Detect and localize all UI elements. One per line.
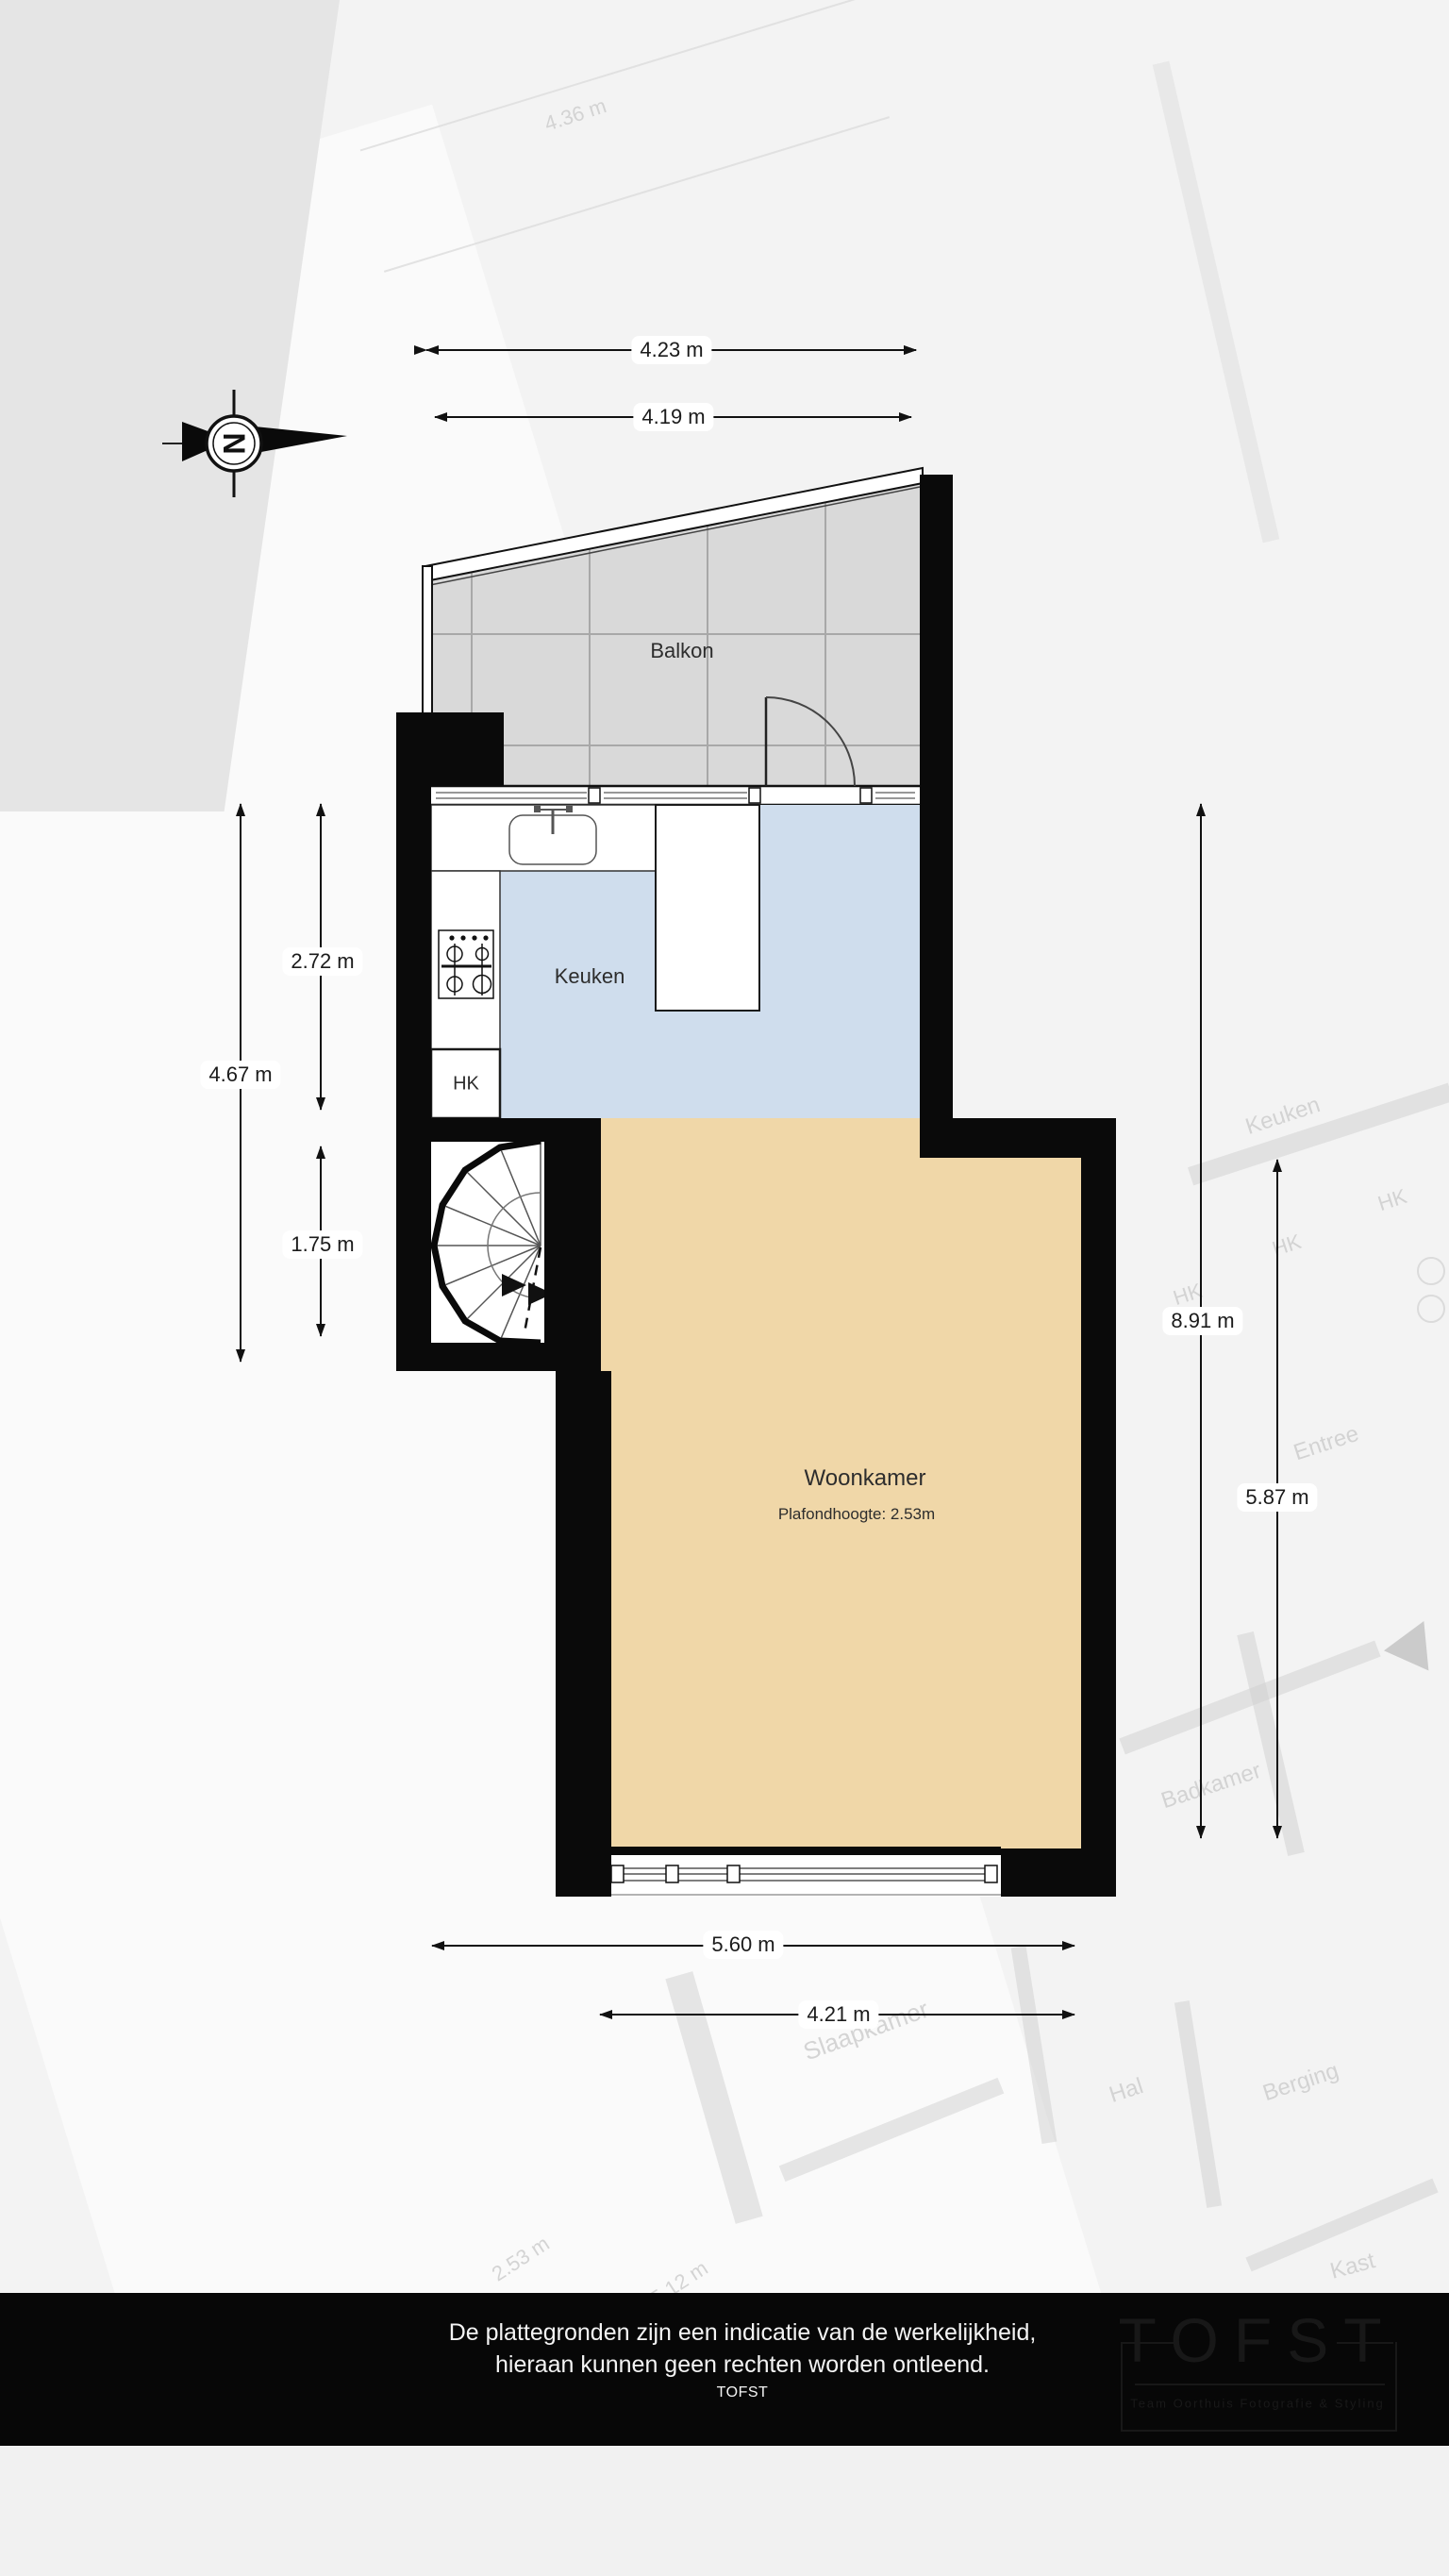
room-label-woonkamer: Woonkamer (805, 1465, 926, 1492)
dim-label-kitchen-height: 2.72 m (282, 947, 362, 976)
room-label-keuken: Keuken (555, 964, 625, 989)
stove-icon (439, 930, 493, 998)
kitchen (431, 805, 920, 1118)
dim-label-stairs-height: 1.75 m (282, 1230, 362, 1259)
dim-label-bottom-1: 5.60 m (703, 1931, 783, 1959)
compass-north-letter: N (217, 432, 251, 454)
tofst-logo-wordmark: TOFST (1118, 2304, 1396, 2376)
floor-plan-svg: N (0, 0, 1449, 2576)
footer-disclaimer: De plattegronden zijn een indicatie van … (299, 2317, 1186, 2405)
sink-icon (509, 806, 596, 864)
room-label-balkon: Balkon (650, 639, 713, 663)
floorplan-page: 4.36 m Keuken HK HK HK Entree Badkamer H… (0, 0, 1449, 2576)
tofst-logo-underline (1135, 2384, 1385, 2385)
kitchen-island (656, 805, 759, 1011)
dim-label-top-1: 4.23 m (631, 336, 711, 364)
dim-label-left-total: 4.67 m (200, 1061, 280, 1089)
balcony-glass-front (431, 786, 920, 805)
room-label-hk: HK (453, 1074, 479, 1096)
living-room-window (611, 1855, 1001, 1897)
dim-label-top-2: 4.19 m (633, 403, 713, 431)
dim-label-living-height: 5.87 m (1237, 1483, 1317, 1512)
footer-disclaimer-line2: hieraan kunnen geen rechten worden ontle… (299, 2349, 1186, 2381)
footer-brand-small: TOFST (299, 2381, 1186, 2405)
tofst-logo-subtitle: Team Oorthuis Fotografie & Styling (1130, 2397, 1385, 2411)
dim-label-bottom-2: 4.21 m (798, 2000, 878, 2029)
dim-label-right-total: 8.91 m (1162, 1307, 1242, 1335)
footer-disclaimer-line1: De plattegronden zijn een indicatie van … (299, 2317, 1186, 2349)
room-label-ceiling-height: Plafondhoogte: 2.53m (778, 1505, 935, 1524)
balcony-railing-left (423, 566, 432, 717)
compass-icon: N (162, 390, 347, 497)
spiral-staircase (431, 1141, 553, 1343)
